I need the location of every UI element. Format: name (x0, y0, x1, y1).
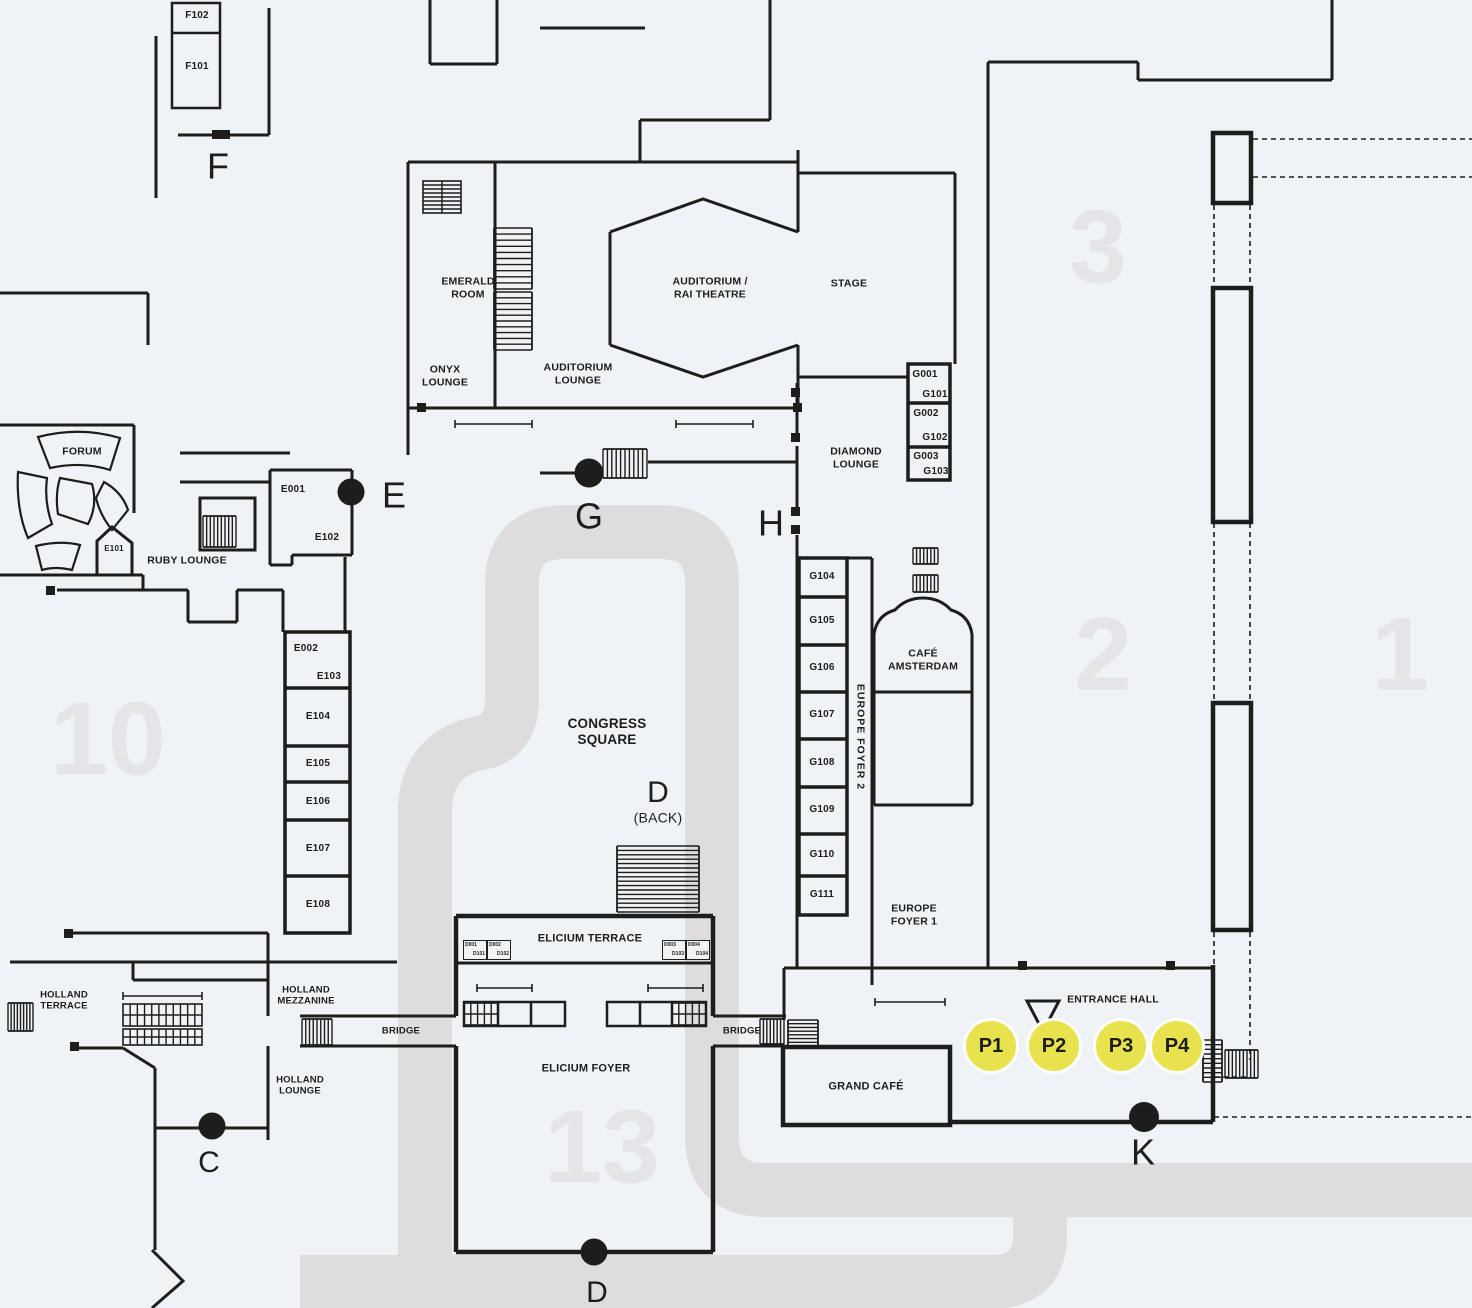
room-box-d-pair-2: D002 D102 (487, 940, 511, 960)
room-d-pair-3b: D103 (672, 952, 684, 957)
room-d-pair-4b: D104 (696, 952, 708, 957)
room-box-d-pair-3: D003 D103 (662, 940, 686, 960)
area-forum: FORUM (62, 446, 102, 459)
area-diamond-lounge: DIAMOND LOUNGE (830, 445, 882, 470)
area-holland-mezzanine: HOLLAND MEZZANINE (277, 985, 334, 1008)
room-e102: E102 (315, 532, 339, 544)
area-auditorium-lounge: AUDITORIUM LOUNGE (544, 361, 613, 386)
area-elicium-terrace: ELICIUM TERRACE (538, 932, 642, 945)
room-g103: G103 (923, 466, 948, 478)
room-d-pair-2a: D002 (489, 943, 501, 948)
area-europe-foyer-2: EUROPE FOYER 2 (854, 684, 867, 790)
entrance-label-c: C (198, 1145, 220, 1181)
label-d-back-letter: D (647, 775, 669, 811)
room-f102: F102 (185, 10, 209, 22)
room-g102: G102 (922, 432, 947, 444)
entrance-label-f: F (207, 144, 229, 187)
area-holland-terrace: HOLLAND TERRACE (40, 990, 88, 1013)
area-stage: STAGE (831, 278, 867, 291)
room-e108: E108 (306, 899, 330, 911)
hall-number-3: 3 (1069, 189, 1127, 308)
room-e001: E001 (281, 484, 305, 496)
room-box-d-pair-1: D001 D101 (463, 940, 487, 960)
entrance-dot-e (338, 479, 365, 506)
area-holland-lounge: HOLLAND LOUNGE (276, 1075, 324, 1098)
room-g003: G003 (913, 451, 938, 463)
area-elicium-foyer: ELICIUM FOYER (542, 1062, 631, 1075)
room-g109: G109 (809, 804, 834, 816)
walkway-paths (300, 532, 1472, 1308)
room-d-pair-3a: D003 (664, 943, 676, 948)
hall-number-13: 13 (544, 1089, 660, 1208)
room-e104: E104 (306, 711, 330, 723)
area-grand-cafe: GRAND CAFÉ (828, 1080, 903, 1093)
area-ruby-lounge: RUBY LOUNGE (147, 555, 227, 568)
room-e101: E101 (104, 544, 123, 554)
dashed-guides (1214, 139, 1472, 1117)
room-g104: G104 (809, 571, 834, 583)
p-marker-p1: P1 (963, 1018, 1019, 1074)
area-emerald-room: EMERALD ROOM (441, 275, 494, 300)
hall-number-2: 2 (1074, 596, 1132, 715)
area-bridge-left: BRIDGE (382, 1025, 420, 1036)
entrance-label-h: H (758, 501, 784, 544)
room-g106: G106 (809, 662, 834, 674)
room-e105: E105 (306, 758, 330, 770)
area-congress-square: CONGRESS SQUARE (568, 716, 647, 748)
hall-number-10: 10 (50, 681, 166, 800)
room-g001: G001 (912, 369, 937, 381)
entrance-label-k: K (1131, 1130, 1155, 1173)
label-d-back-text: (BACK) (634, 810, 683, 827)
entrance-dot-k (1129, 1102, 1159, 1132)
room-g108: G108 (809, 757, 834, 769)
entrance-label-e: E (382, 473, 406, 516)
room-e106: E106 (306, 796, 330, 808)
floorplan-drawing (0, 0, 1472, 1308)
room-g107: G107 (809, 709, 834, 721)
area-bridge-right: BRIDGE (723, 1025, 761, 1036)
area-onyx-lounge: ONYX LOUNGE (422, 363, 468, 388)
room-d-pair-1a: D001 (465, 943, 477, 948)
room-g110: G110 (810, 849, 835, 861)
room-d-pair-1b: D101 (473, 952, 485, 957)
area-europe-foyer-1: EUROPE FOYER 1 (891, 902, 937, 927)
room-box-d-pair-4: D004 D104 (686, 940, 710, 960)
room-g002: G002 (913, 408, 938, 420)
area-entrance-hall: ENTRANCE HALL (1067, 994, 1159, 1007)
entrance-dot-g (575, 459, 604, 488)
venue-floorplan: 3 2 1 10 13 FORUM RUBY LOUNGE ONYX LOUNG… (0, 0, 1472, 1308)
entrance-label-d: D (586, 1275, 608, 1308)
room-g101: G101 (922, 389, 947, 401)
entrance-dot-d (581, 1239, 608, 1266)
room-e107: E107 (306, 843, 330, 855)
room-g105: G105 (809, 615, 834, 627)
room-d-pair-2b: D102 (497, 952, 509, 957)
entrance-dot-c (199, 1113, 226, 1140)
entrance-label-g: G (575, 494, 603, 537)
p-marker-p3: P3 (1093, 1018, 1149, 1074)
p-marker-p2: P2 (1026, 1018, 1082, 1074)
room-f101: F101 (185, 61, 209, 73)
room-e103: E103 (317, 671, 341, 683)
hall-number-1: 1 (1371, 596, 1429, 715)
room-d-pair-4a: D004 (688, 943, 700, 948)
p-marker-p4: P4 (1149, 1018, 1205, 1074)
area-auditorium-rai-theatre: AUDITORIUM / RAI THEATRE (672, 275, 747, 300)
room-e002: E002 (294, 643, 318, 655)
area-cafe-amsterdam: CAFÉ AMSTERDAM (888, 647, 958, 672)
room-g111: G111 (810, 889, 834, 901)
